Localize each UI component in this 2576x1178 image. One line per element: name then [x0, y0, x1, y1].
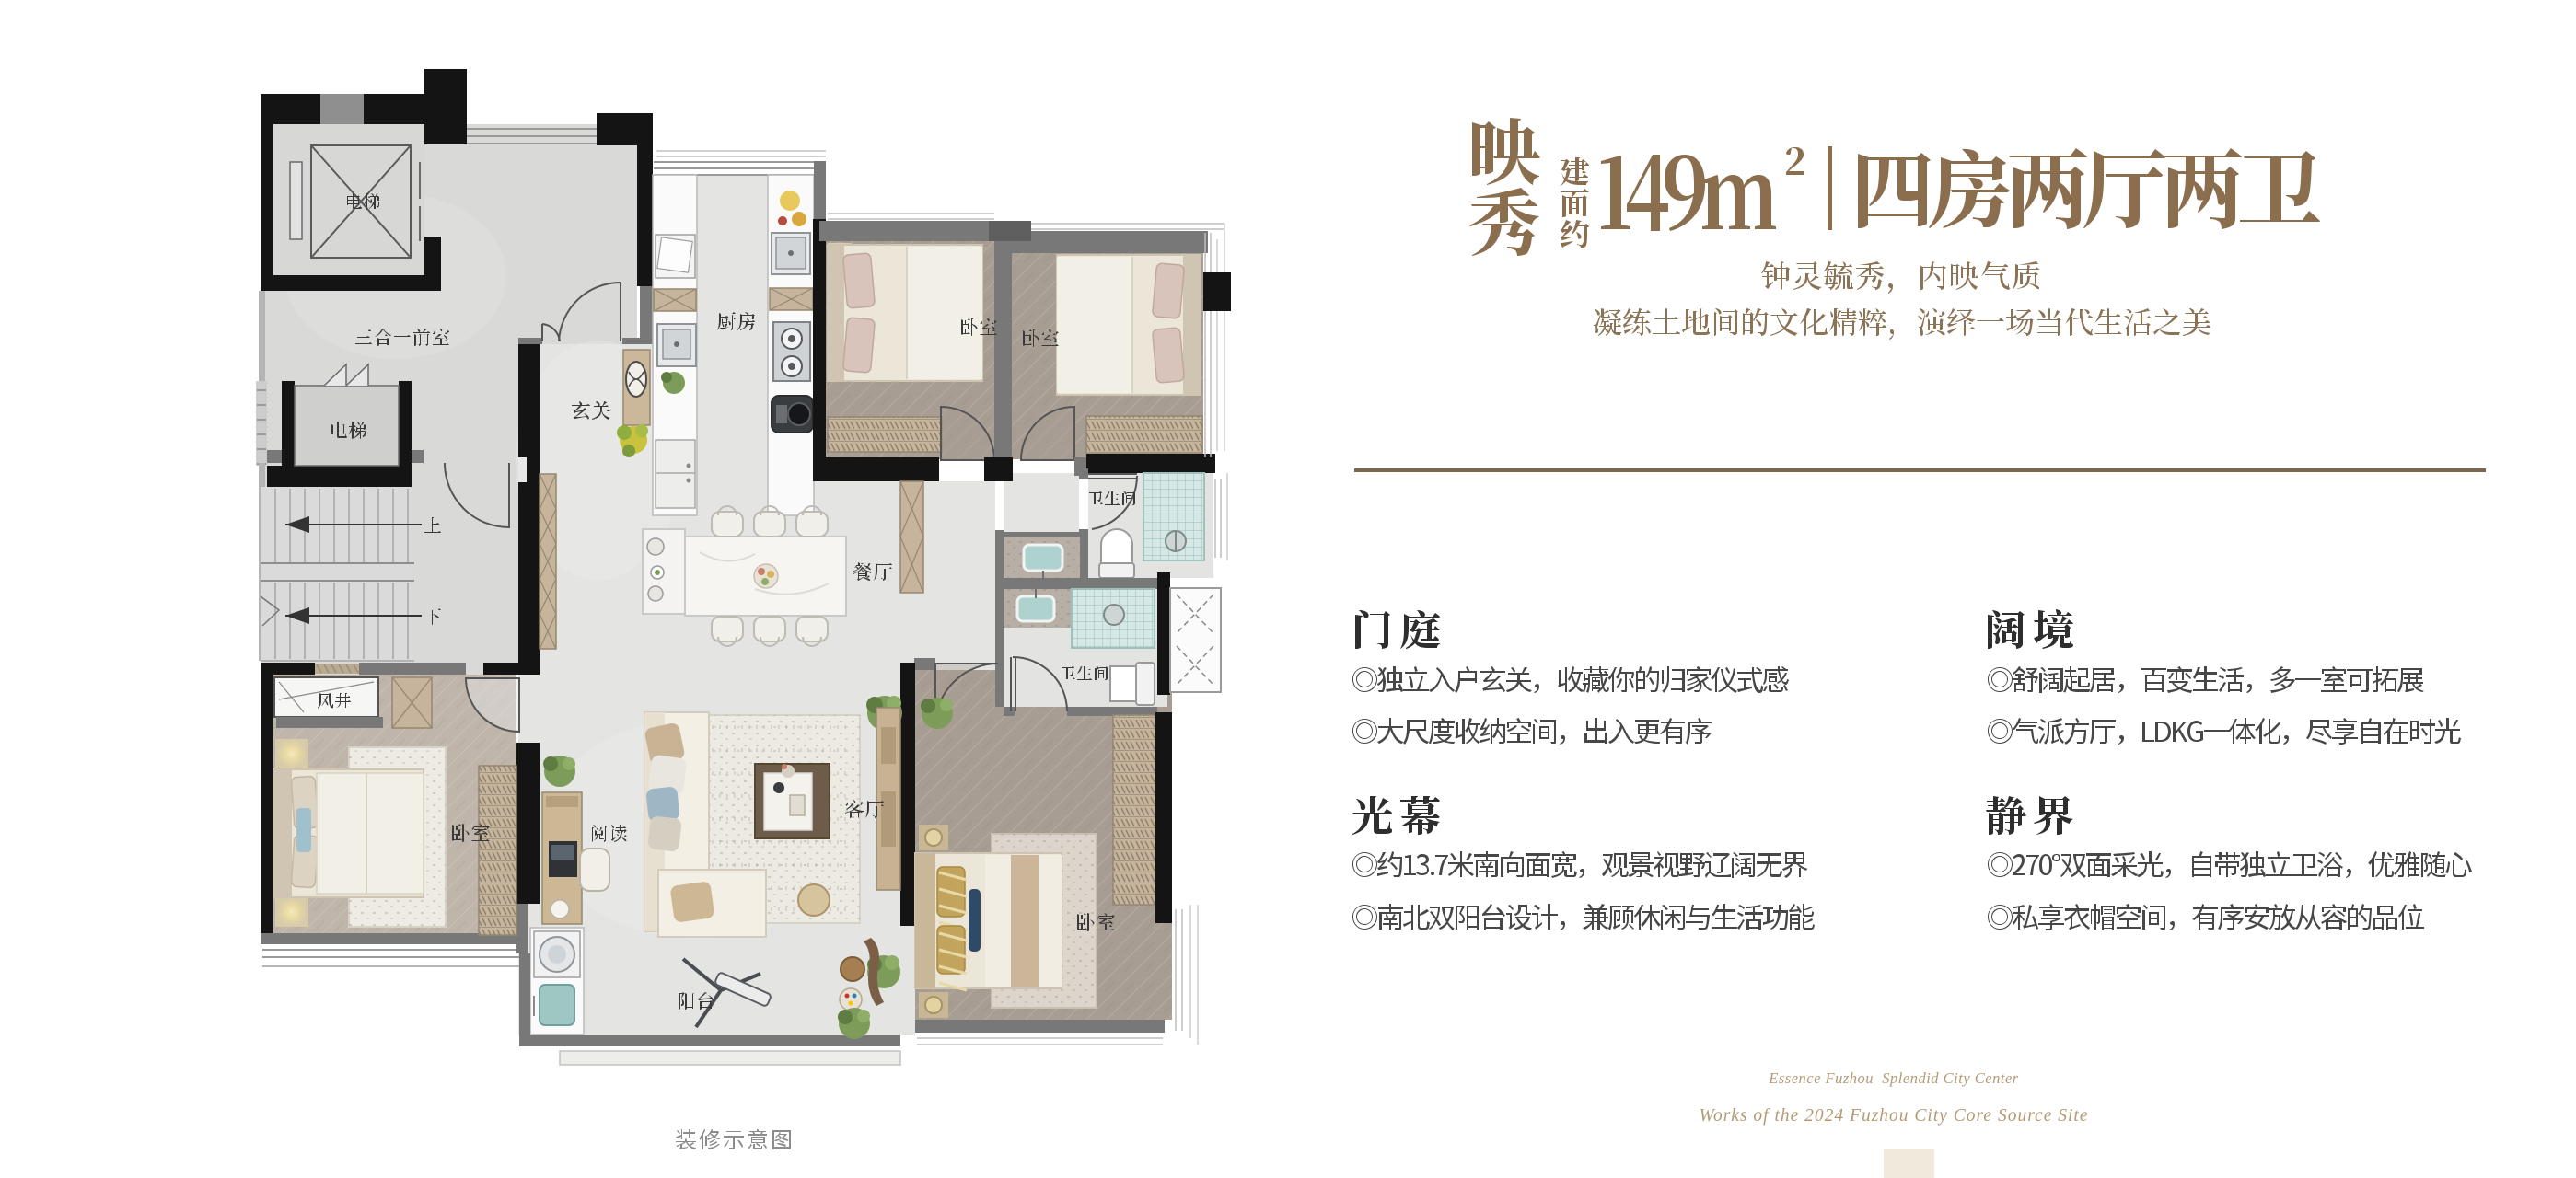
svg-text:Essence Fuzhou Splendid City: Essence Fuzhou Splendid City Center: [1768, 1069, 2018, 1087]
svg-text:Works of the 2024 Fuzhou City: Works of the 2024 Fuzhou City Core Sourc…: [1700, 1106, 2089, 1126]
